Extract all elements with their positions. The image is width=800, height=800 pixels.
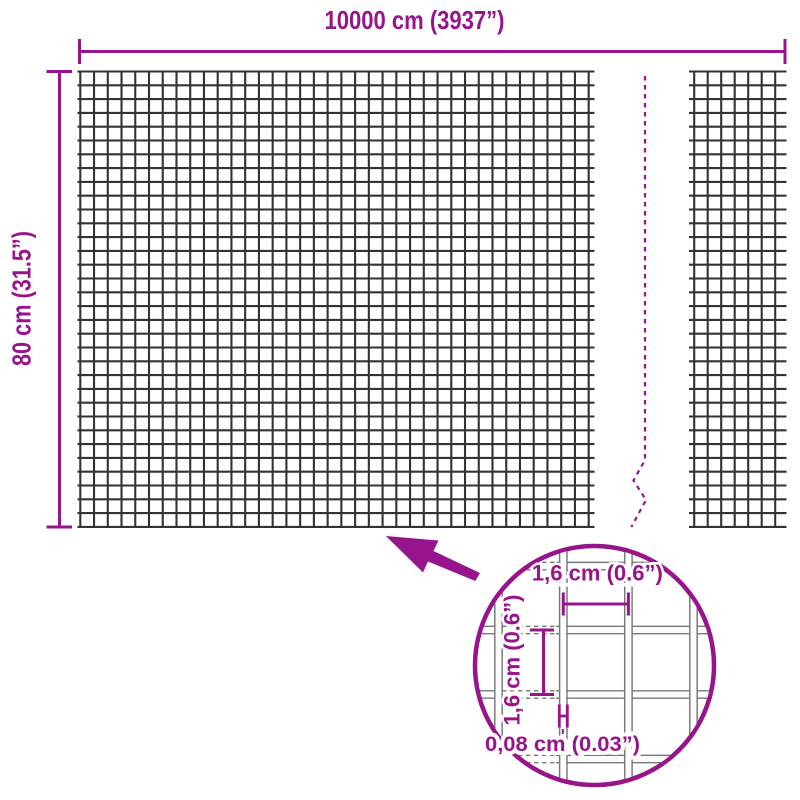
svg-text:80 cm (31.5”): 80 cm (31.5”) (9, 231, 37, 366)
svg-text:0,08 cm (0.03”): 0,08 cm (0.03”) (485, 732, 640, 756)
svg-text:10000 cm (3937”): 10000 cm (3937”) (325, 5, 505, 35)
svg-text:1,6 cm (0.6”): 1,6 cm (0.6”) (500, 595, 525, 726)
svg-text:1,6 cm (0.6”): 1,6 cm (0.6”) (532, 560, 663, 585)
